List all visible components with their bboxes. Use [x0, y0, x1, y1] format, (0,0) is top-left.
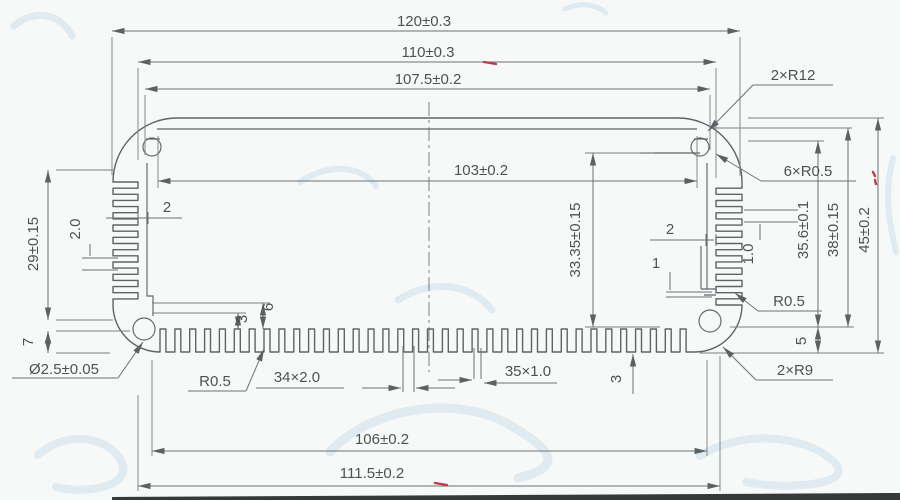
dim-fillets: 6×R0.5 — [784, 163, 833, 180]
dim-left-fin-height: 29±0.15 — [25, 217, 42, 271]
dim-right-fin-pitch: 1.0 — [740, 244, 757, 265]
dim-height-inner: 35.6±0.1 — [795, 201, 812, 259]
dim-left-wall: 2 — [163, 199, 171, 216]
dim-hole-dia: Ø2.5±0.05 — [29, 361, 99, 378]
dim-right-wall: 2 — [666, 221, 674, 238]
dim-right-rib: 1 — [652, 255, 660, 272]
dim-cavity-width: 103±0.2 — [454, 162, 508, 179]
screw-boss-bottom-left — [133, 318, 155, 340]
engineering-drawing-canvas: 120±0.3 110±0.3 107.5±0.2 103±0.2 33.35±… — [0, 0, 900, 500]
dim-bottom-outer-width: 111.5±0.2 — [340, 465, 404, 482]
dim-corner-radius-top: 2×R12 — [771, 67, 816, 84]
dim-corner-radius-bottom: 2×R9 — [777, 362, 813, 379]
dim-step-width: 107.5±0.2 — [395, 71, 462, 88]
dim-body-width: 110±0.3 — [402, 44, 455, 61]
dim-corner-height: 5 — [793, 337, 810, 345]
dim-bottom-ribs: 35×1.0 — [505, 363, 551, 380]
photo-edge — [112, 493, 900, 500]
dim-bottom-inner-width: 106±0.2 — [355, 431, 409, 448]
screw-boss-bottom-right — [699, 310, 721, 332]
dim-height-overall: 45±0.2 — [856, 207, 873, 253]
dim-bottom-depth: 3 — [608, 375, 625, 383]
dim-bottom-fin-radius: R0.5 — [199, 373, 231, 390]
extension-lines — [56, 37, 884, 491]
dim-bottom-slots: 34×2.0 — [274, 369, 320, 386]
dim-left-corner-height: 7 — [20, 338, 37, 346]
dim-height-mid: 38±0.15 — [825, 203, 842, 257]
dim-cavity-height: 33.35±0.15 — [567, 203, 584, 278]
dim-overall-width: 120±0.3 — [397, 13, 451, 30]
profile-drawing-svg: 120±0.3 110±0.3 107.5±0.2 103±0.2 33.35±… — [0, 0, 900, 500]
dim-right-fin-radius: R0.5 — [773, 293, 805, 310]
dim-left-step6: 6 — [260, 303, 277, 311]
dim-left-step3: 3 — [234, 315, 251, 323]
dim-left-fin-pitch: 2.0 — [67, 219, 84, 240]
screw-bosses — [133, 138, 721, 340]
